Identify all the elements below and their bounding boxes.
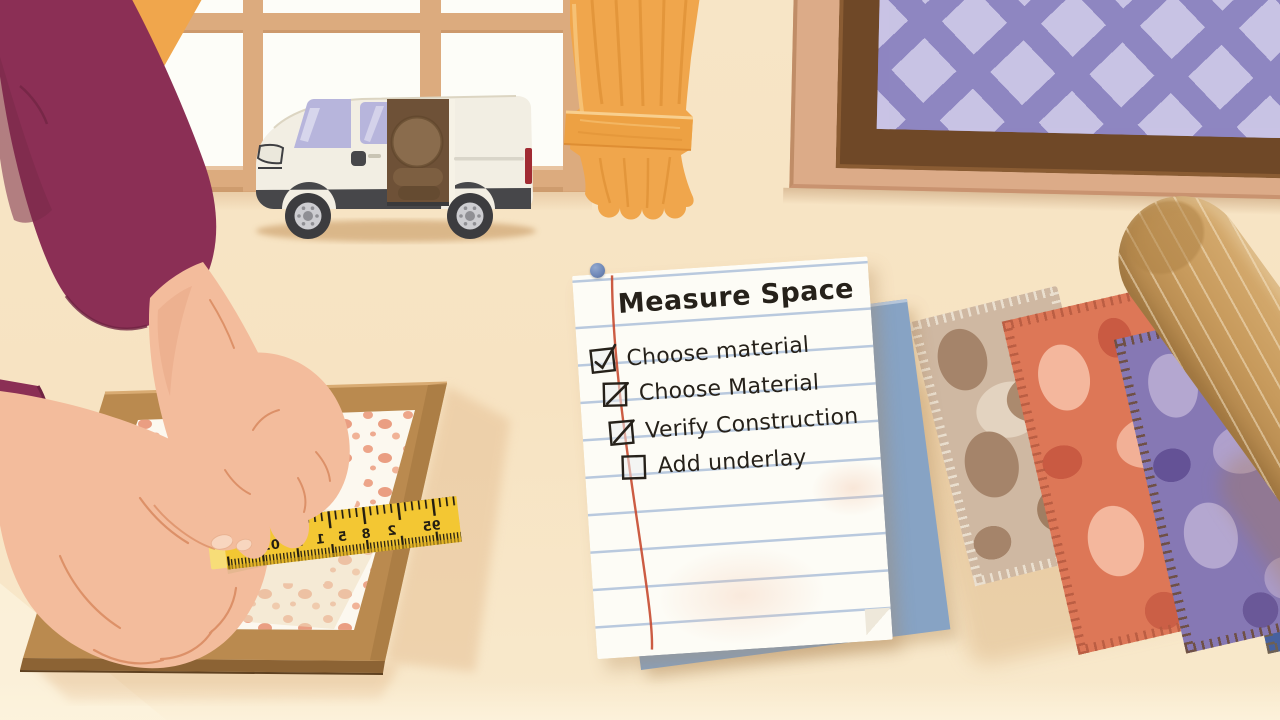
item-label: Add underlay [657, 445, 807, 479]
svg-text:01: 01 [261, 537, 281, 554]
upper-wrist [149, 262, 294, 532]
pushpin-icon [590, 263, 605, 278]
svg-text:3: 3 [293, 535, 304, 551]
svg-text:2: 2 [387, 523, 398, 539]
tape-tip [206, 526, 229, 570]
checkbox-slash-icon [602, 381, 630, 409]
frame-rug-purple [877, 0, 1280, 140]
svg-text:8: 8 [361, 527, 372, 543]
diamond-pattern [877, 0, 1280, 140]
van-wheel-rear [447, 193, 493, 239]
board-shadow [385, 386, 510, 672]
illustration-scene: Measure Space Choose material Choose Mat… [0, 0, 1280, 720]
van-mirror [351, 151, 366, 166]
van-taillight [525, 148, 532, 184]
lower-sleeve-cuff [0, 378, 50, 478]
middle-finger [266, 489, 309, 548]
van-headlight [258, 145, 283, 163]
van-windshield [294, 99, 351, 148]
white-rug-swatch [62, 410, 415, 630]
checkbox-checked-icon [588, 346, 618, 376]
svg-text:1: 1 [315, 532, 326, 548]
lower-thumb [145, 473, 253, 551]
tape-measure: 5 01 3 1 5 8 2 95 [206, 496, 462, 572]
checkbox-slash-icon [607, 419, 636, 448]
measuring-board [20, 383, 447, 674]
note-paper: Measure Space Choose material Choose Mat… [572, 256, 893, 659]
svg-text:5: 5 [337, 529, 348, 545]
tape-numbers: 5 01 3 1 5 8 2 95 [240, 518, 442, 557]
checkbox-empty-icon [620, 454, 648, 482]
speckled-border [62, 410, 415, 630]
curtain-right [540, 0, 720, 245]
svg-text:5: 5 [240, 541, 251, 557]
item-label: Choose Material [638, 370, 820, 406]
framed-rug [789, 0, 1280, 201]
svg-text:95: 95 [422, 518, 442, 535]
van-wheel-front [285, 193, 331, 239]
fingernail [235, 537, 254, 552]
van-trim-line [454, 157, 524, 161]
upper-hand [197, 352, 350, 526]
floor-glow [0, 682, 1280, 720]
van-door-handle [368, 154, 381, 158]
van-door-edge [449, 99, 455, 206]
delivery-van [248, 78, 548, 248]
thumbnail [210, 533, 235, 552]
curtain-body [570, 0, 700, 220]
index-finger [228, 491, 270, 559]
tape-shadow [226, 514, 460, 574]
